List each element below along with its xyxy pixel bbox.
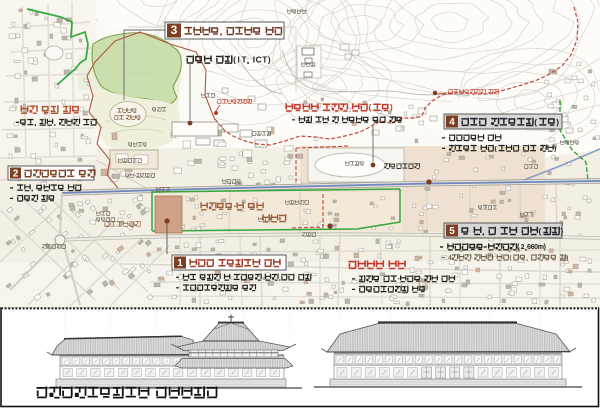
svg-text:(: ( bbox=[539, 226, 542, 236]
svg-text:1: 1 bbox=[177, 258, 183, 269]
svg-text:): ) bbox=[390, 103, 393, 112]
svg-text:4: 4 bbox=[448, 255, 452, 262]
svg-text:): ) bbox=[556, 117, 559, 127]
svg-text:3: 3 bbox=[171, 23, 178, 37]
svg-text:(: ( bbox=[534, 117, 537, 127]
svg-text:(2: (2 bbox=[517, 244, 525, 251]
svg-text:5: 5 bbox=[449, 226, 455, 237]
svg-text:(: ( bbox=[369, 103, 372, 112]
svg-text:(IT: (IT bbox=[233, 54, 247, 64]
svg-text:): ) bbox=[561, 226, 564, 236]
svg-text:660m): 660m) bbox=[527, 244, 546, 251]
svg-text:2: 2 bbox=[13, 169, 19, 180]
svg-text:ICT): ICT) bbox=[253, 54, 271, 64]
svg-text:): ) bbox=[566, 255, 568, 262]
svg-text:4: 4 bbox=[449, 117, 455, 128]
svg-text:): ) bbox=[554, 146, 556, 153]
